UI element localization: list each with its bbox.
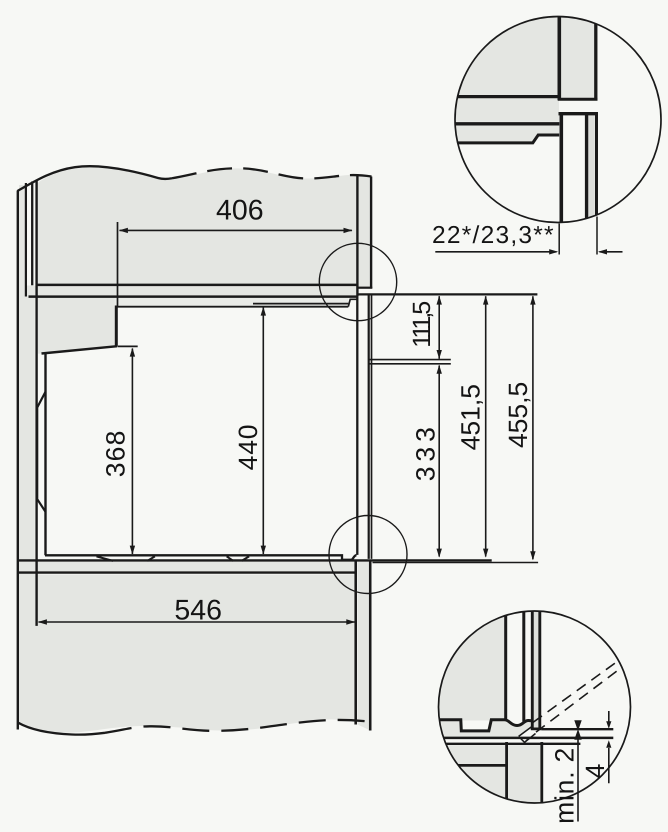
svg-text:min. 2: min. 2 bbox=[550, 747, 580, 824]
svg-text:451,5: 451,5 bbox=[456, 384, 486, 450]
svg-text:368: 368 bbox=[101, 429, 131, 477]
svg-text:333: 333 bbox=[411, 422, 441, 481]
svg-text:406: 406 bbox=[216, 195, 264, 227]
svg-text:111,5: 111,5 bbox=[408, 302, 436, 348]
svg-text:440: 440 bbox=[233, 424, 263, 471]
svg-text:546: 546 bbox=[174, 595, 222, 627]
svg-text:22*/23,3**: 22*/23,3** bbox=[432, 222, 555, 249]
svg-text:455,5: 455,5 bbox=[503, 382, 533, 448]
svg-text:4: 4 bbox=[580, 764, 610, 779]
